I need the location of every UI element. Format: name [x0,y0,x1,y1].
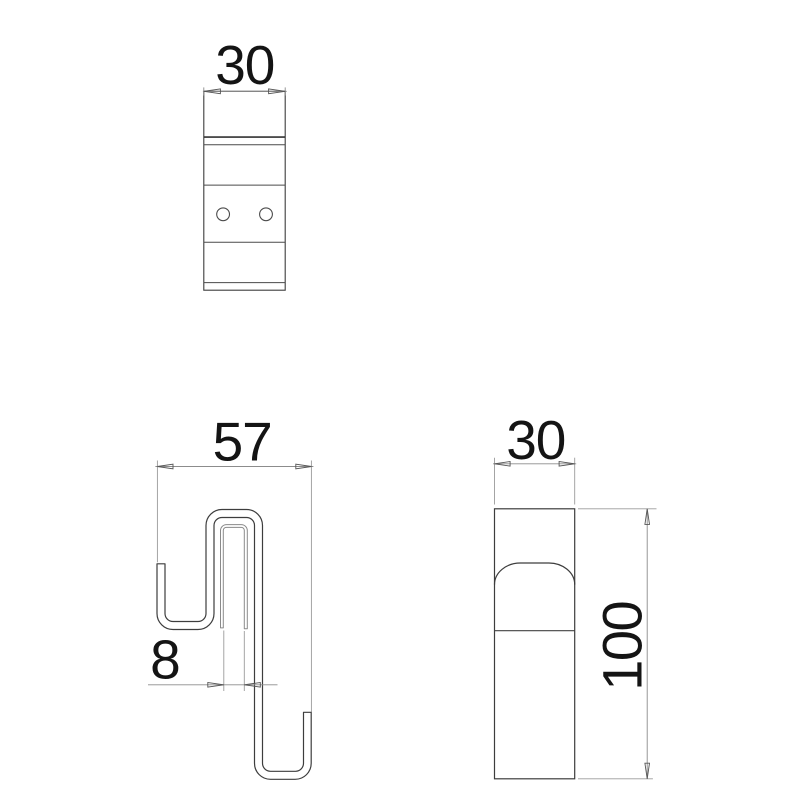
svg-text:100: 100 [590,602,653,691]
svg-text:57: 57 [213,410,272,472]
svg-text:8: 8 [150,629,181,691]
svg-text:30: 30 [215,34,274,96]
svg-text:30: 30 [506,409,565,471]
